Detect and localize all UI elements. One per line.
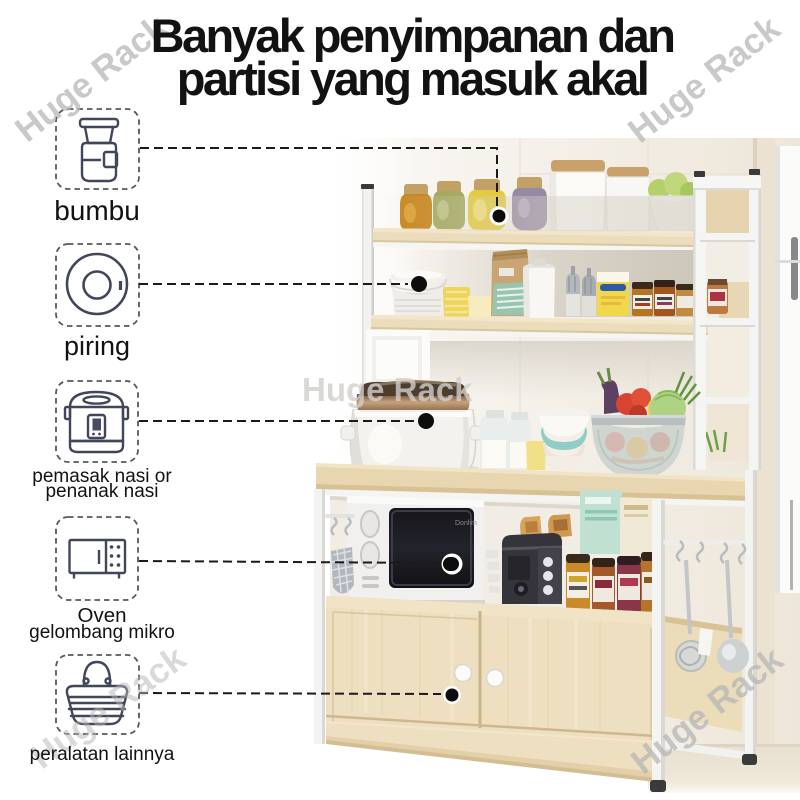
svg-text:Donlim: Donlim (455, 520, 477, 527)
